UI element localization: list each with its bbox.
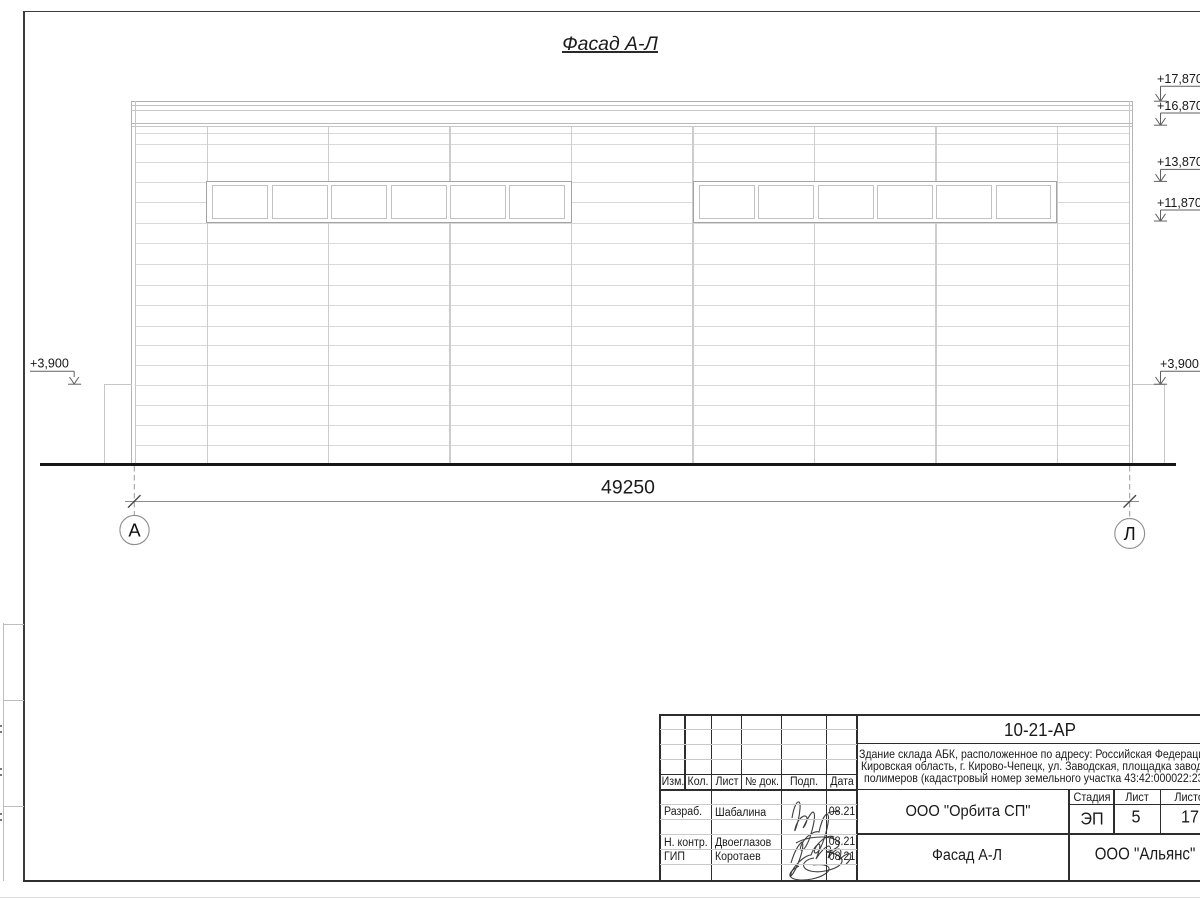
svg-text:+16,870: +16,870 xyxy=(1157,99,1200,113)
svg-text:А: А xyxy=(128,520,141,541)
svg-text:+13,870: +13,870 xyxy=(1157,155,1200,169)
svg-text:+3,900: +3,900 xyxy=(1160,357,1199,371)
svg-text:+3,900: +3,900 xyxy=(30,357,69,371)
svg-text:+17,870: +17,870 xyxy=(1157,72,1200,86)
svg-text:Л: Л xyxy=(1124,523,1136,544)
svg-text:+11,870: +11,870 xyxy=(1157,196,1200,210)
